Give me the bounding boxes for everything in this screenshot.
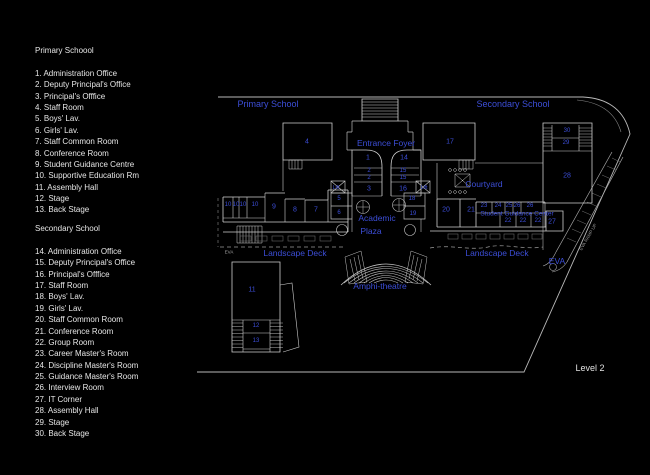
plan-label-layer: Primary SchoolSecondary SchoolEntrance F… (0, 0, 650, 475)
lift-east-label: Lift (421, 185, 428, 191)
room-20-label: 20 (442, 207, 450, 214)
room-3-label: 3 (367, 186, 371, 193)
amphitheatre-label: Amphi-theatre (353, 281, 406, 291)
room-26b-label: 26 (527, 203, 534, 209)
room-18-label: 18 (409, 196, 416, 202)
room-8-label: 8 (293, 207, 297, 214)
room-1-label: 1 (366, 155, 370, 162)
room-10b-label: 10 (233, 202, 240, 208)
room-4-label: 4 (305, 139, 309, 146)
room-6-label: 6 (337, 210, 340, 216)
room-2b-label: 2 (367, 175, 370, 181)
room-24-label: 24 (495, 203, 502, 209)
primary-school-area-label: Primary School (237, 99, 298, 109)
academic-plaza-label-line1: Academic (358, 213, 395, 223)
level-label: Level 2 (575, 363, 604, 373)
room-27-label: 27 (548, 219, 556, 226)
room-15b-label: 15 (400, 175, 407, 181)
room-13-label: 13 (253, 338, 260, 344)
room-12-label: 12 (253, 323, 260, 329)
entrance-foyer-label: Entrance Foyer (357, 138, 415, 148)
room-22c-label: 22 (535, 218, 542, 224)
room-10a-label: 10 (225, 202, 232, 208)
room-22b-label: 22 (520, 218, 527, 224)
room-2a-label: 2 (367, 168, 370, 174)
room-22a-label: 22 (505, 218, 512, 224)
room-15a-label: 15 (400, 168, 407, 174)
room-10c-label: 10 (240, 202, 247, 208)
room-25-label: 25 (506, 203, 513, 209)
room-7-label: 7 (314, 207, 318, 214)
courtyard-label: Courtyard (465, 179, 502, 189)
room-5-label: 5 (337, 196, 340, 202)
eva-ramp-label: EVA RAMP UP (578, 223, 597, 252)
room-14-label: 14 (400, 155, 408, 162)
eva-label: EVA (549, 256, 565, 266)
room-30-label: 30 (564, 128, 571, 134)
lift-west-label: Lift (333, 185, 340, 191)
room-16-label: 16 (399, 186, 407, 193)
room-21-label: 21 (467, 207, 475, 214)
room-26a-label: 26 (514, 203, 521, 209)
room-19-label: 19 (410, 211, 417, 217)
secondary-school-area-label: Secondary School (476, 99, 549, 109)
academic-plaza-label-line2: Plaza (360, 226, 381, 236)
student-guidance-center-label: Student Guidance Center (480, 211, 553, 218)
room-17-label: 17 (446, 139, 454, 146)
landscape-deck-west-label: Landscape Deck (263, 248, 326, 258)
room-29-label: 29 (563, 140, 570, 146)
eva-west-tiny-label: EVA (225, 250, 234, 255)
room-11-label: 11 (248, 287, 255, 294)
room-10d-label: 10 (252, 202, 259, 208)
floor-plan-page: Primary Schoool 1. Administration Office… (0, 0, 650, 475)
room-23-label: 23 (481, 203, 488, 209)
room-9-label: 9 (272, 204, 276, 211)
room-28-label: 28 (563, 173, 571, 180)
landscape-deck-east-label: Landscape Deck (465, 248, 528, 258)
